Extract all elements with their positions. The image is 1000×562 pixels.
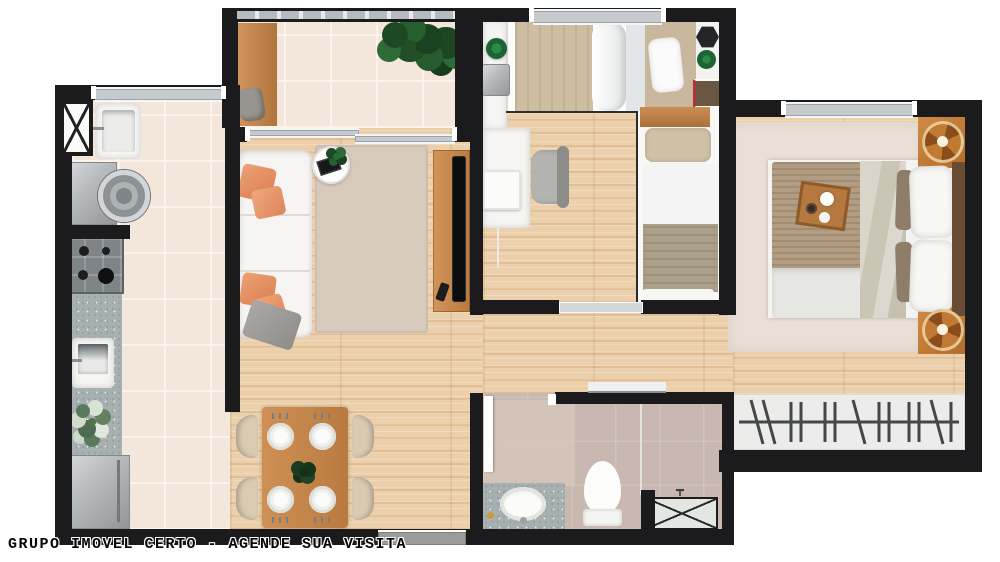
bedroom1-sliding-door: [559, 302, 643, 313]
bathroom-faucet-icon: [520, 517, 527, 524]
stove-burner: [98, 268, 114, 284]
toilet-tank: [583, 509, 622, 526]
dinner-plate: [309, 486, 336, 513]
headboard: [952, 162, 966, 316]
balcony-bench-cushion: [237, 86, 266, 122]
hanger-rail-icon: [733, 394, 965, 450]
wall-segment: [470, 393, 483, 545]
counter-flowers-plant: [88, 418, 96, 426]
wall-segment: [222, 8, 238, 128]
wall-segment: [722, 392, 734, 545]
balcony-railing: [237, 11, 455, 19]
balcony-plant: [404, 40, 416, 52]
bathroom-door-leaf: [484, 396, 493, 472]
wall-segment: [641, 490, 655, 530]
window-end-cap: [781, 101, 786, 115]
refrigerator-handle: [117, 460, 120, 522]
white-pillow: [909, 239, 955, 312]
tv-flatscreen: [452, 156, 466, 302]
cutlery-set-icon: [314, 413, 331, 419]
wall-segment: [555, 392, 733, 404]
wall-segment: [483, 300, 559, 314]
watermark-caption: GRUPO IMOVEL CERTO - AGENDE SUA VISITA: [8, 536, 407, 553]
dining-chair: [352, 415, 374, 458]
toilet-bowl: [584, 461, 621, 513]
green-pouf: [697, 50, 716, 69]
door-end-cap: [452, 127, 457, 141]
wall-segment: [641, 300, 736, 314]
balcony-sliding-door-rail: [355, 134, 455, 144]
swivel-armchair-center: [937, 324, 948, 335]
single-bed-a-pillow: [647, 36, 684, 93]
balcony-sliding-door-rail: [247, 128, 359, 138]
dinner-plate: [267, 486, 294, 513]
bed-foot-duvet: [772, 268, 864, 318]
swivel-armchair-center: [937, 136, 948, 147]
dining-chair: [236, 477, 258, 520]
wall-segment: [719, 450, 982, 472]
wall-segment: [455, 8, 470, 142]
bathroom-basin: [500, 487, 546, 521]
office-chair-back: [557, 146, 569, 208]
stove-burner: [102, 247, 110, 255]
wall-segment: [965, 100, 982, 472]
single-bed-b-head-shelf: [640, 107, 710, 127]
window-end-cap: [91, 86, 96, 99]
single-bed-b-pillow: [645, 128, 711, 162]
wall-segment: [470, 8, 483, 315]
desk-mini-fridge: [482, 64, 510, 96]
dinner-plate: [309, 423, 336, 450]
soap-dish-gold: [487, 512, 494, 519]
bathroom-sliding-door: [588, 382, 666, 393]
floor-plan: GRUPO IMOVEL CERTO - AGENDE SUA VISITA: [0, 0, 1000, 562]
coffee-cup-dark: [806, 203, 817, 214]
desk-cable: [497, 228, 499, 268]
wall-segment: [225, 100, 240, 412]
single-bed-b-blanket: [643, 224, 718, 292]
desk-stool-green: [486, 38, 507, 59]
single-bed-a-sheet: [626, 22, 646, 111]
bathroom-floor-light-patch: [483, 400, 575, 486]
table-centerpiece-plant: [299, 468, 308, 477]
single-bed-a-duvet: [515, 22, 593, 111]
window-end-cap: [661, 8, 666, 22]
breakfast-tray: [795, 181, 851, 232]
laundry-sink-basin: [102, 110, 135, 152]
teapot: [820, 192, 834, 206]
shower-box: [646, 497, 718, 530]
cutlery-set-icon: [314, 517, 331, 523]
bedroom1-window: [533, 9, 662, 25]
side-table-plant: [333, 153, 340, 160]
stove-burner: [79, 246, 89, 256]
dining-chair: [352, 477, 374, 520]
window-end-cap: [529, 8, 534, 22]
single-bed-b-sheet: [643, 163, 718, 226]
master-window: [785, 102, 913, 118]
service-shaft-box: [60, 100, 93, 156]
washing-machine-door: [98, 170, 150, 222]
desk-laptop: [483, 170, 521, 210]
wardrobe-closet: [733, 394, 965, 450]
shower-glass-line: [640, 403, 642, 495]
window-end-cap: [221, 86, 226, 99]
wall-segment: [55, 225, 130, 239]
cutlery-set-icon: [272, 413, 289, 419]
door-frame-cap: [548, 394, 556, 405]
stove-cooktop: [66, 236, 124, 294]
dining-chair: [236, 415, 258, 458]
dinner-plate: [267, 423, 294, 450]
coffee-cup-white: [819, 212, 830, 223]
single-bed-a-rolled-duvet: [592, 22, 626, 111]
wall-segment: [719, 8, 736, 315]
window-end-cap: [912, 101, 917, 115]
stove-burner: [78, 270, 88, 280]
white-pillow: [909, 165, 955, 238]
kitchen-sink-basin: [78, 344, 108, 374]
door-end-cap: [245, 127, 250, 141]
cutlery-set-icon: [272, 517, 289, 523]
kitchen-window: [95, 87, 222, 102]
